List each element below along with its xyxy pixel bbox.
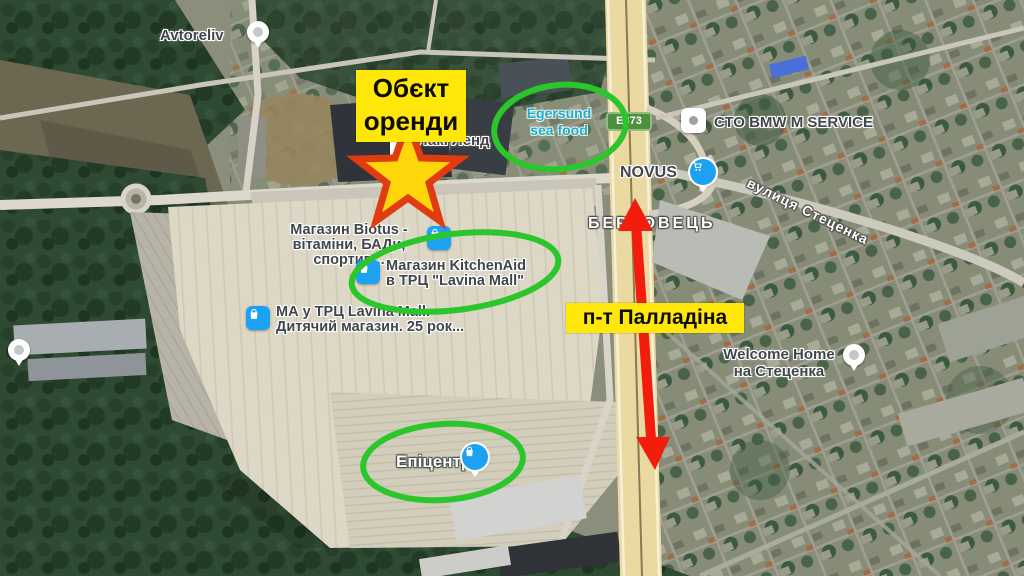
rent-object-callout: Обєкт оренди	[356, 70, 466, 142]
callout-layer: Обєкт оренди п-т Палладіна	[0, 0, 1024, 576]
palladina-avenue-callout: п-т Палладіна	[566, 303, 744, 333]
map-viewport[interactable]: Avtoreliv Лакі Ленд Egersund sea food E3…	[0, 0, 1024, 576]
